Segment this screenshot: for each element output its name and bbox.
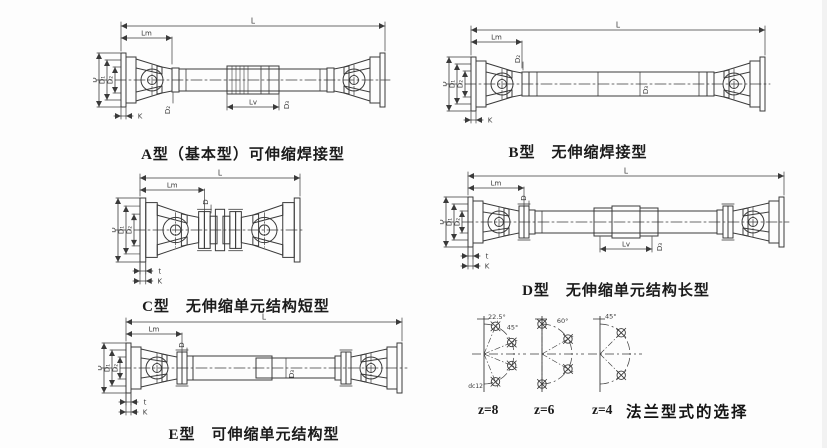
dim-C-D₁: D₁ [118,226,126,234]
drawing-type-a-telescopic-welded: LLmDD₁D₂KD₂LvD₃ [93,16,393,140]
dim-D-mid-dia: D₃ [656,243,664,251]
caption-type-e: E型 可伸缩单元结构型 [98,423,410,444]
dim-C-Lm: Lm [167,182,178,190]
dim-E-tube-dia: D₃ [288,370,296,378]
flange-pattern-drawing: 22.5°45°dc1260°45° [464,312,679,398]
flange-bolt-note: dc12 [468,383,483,390]
dim-A-K: K [138,113,143,121]
dim-A-L: L [251,17,256,26]
dim-B-D₂: D₂ [457,80,465,88]
diagram-type-c: LLmDD₁D₂tKD C型 无伸缩单元结构短型 [112,168,308,316]
diagram-type-d: LLmDD₁D₂tKDLvD₃ D型 无伸缩单元结构长型 [440,166,792,300]
dim-D-K: K [485,263,490,271]
dim-E-K: K [143,409,148,417]
flange-z4-label: z=4 [592,402,612,418]
dim-B-K: K [488,117,493,125]
diagram-type-e: LLmDD₁D₂tKDD₃ E型 可伸缩单元结构型 [98,312,410,444]
caption-type-a: A型（基本型）可伸缩焊接型 [93,143,393,164]
dim-D-D₂: D₂ [454,218,462,226]
dim-A-D₁: D₁ [99,76,107,84]
drawing-type-c-unit-short: LLmDD₁D₂tKD [112,168,308,292]
caption-type-d: D型 无伸缩单元结构长型 [440,279,792,300]
dim-E-D₂: D₂ [112,364,120,372]
diagram-type-b: LLmDD₁D₂KD₂D₃ B型 无伸缩焊接型 [443,20,773,162]
flange-z6-label: z=6 [534,402,554,418]
dim-D-L: L [624,167,629,176]
dim-A-mid-dia: D₃ [283,101,291,109]
dim-D-collar: D [520,195,528,200]
flange-z8-label: z=8 [478,402,498,418]
dim-B-tube-dia: D₃ [642,86,650,94]
dim-B-L: L [616,21,621,30]
dim-B-collar: D₂ [514,55,522,63]
dim-A-Lv: Lv [249,99,257,107]
flange-angle-label: 45° [605,313,617,321]
dim-C-K: K [157,278,162,286]
dim-D-Lm: Lm [491,180,502,188]
flange-label-row: z=8 z=6 z=4 法兰型式的选择 [464,402,824,424]
drawing-type-d-unit-long: LLmDD₁D₂tKDLvD₃ [440,166,792,276]
dim-A-D₂: D₂ [107,76,115,84]
drawing-type-b-non-telescopic-welded: LLmDD₁D₂KD₂D₃ [443,20,773,138]
flange-selection-panel: 22.5°45°dc1260°45° z=8 z=6 z=4 法兰型式的选择 [464,312,824,424]
caption-type-b: B型 无伸缩焊接型 [413,141,743,162]
flange-angle-label: 45° [507,323,519,331]
flange-angle-label: 60° [557,317,569,325]
flange-angle-label: 22.5° [488,313,506,321]
drawing-type-e-telescopic-unit: LLmDD₁D₂tKDD₃ [98,312,410,420]
dim-C-L: L [218,169,223,178]
dim-E-Lm: Lm [149,326,160,334]
dim-D-D₁: D₁ [446,218,454,226]
diagram-type-a: LLmDD₁D₂KD₂LvD₃ A型（基本型）可伸缩焊接型 [93,16,393,164]
dim-D-Lv: Lv [622,241,630,249]
dim-E-L: L [262,313,267,322]
dim-E-t: t [144,399,147,407]
cardan-shaft-type-sheet: LLmDD₁D₂KD₂LvD₃ A型（基本型）可伸缩焊接型 LLmDD₁D₂KD… [0,0,827,448]
dim-B-Lm: Lm [491,34,502,42]
dim-B-D₁: D₁ [449,80,457,88]
dim-C-t: t [158,268,161,276]
dim-A-Lm: Lm [141,30,152,38]
dim-E-D₁: D₁ [104,364,112,372]
dim-C-D₂: D₂ [126,226,134,234]
dim-C-collar: D [202,199,210,204]
dim-D-t: t [486,253,489,261]
flange-caption: 法兰型式的选择 [626,400,749,422]
dim-A-collar: D₂ [164,106,172,114]
dim-E-collar: D [178,342,186,347]
